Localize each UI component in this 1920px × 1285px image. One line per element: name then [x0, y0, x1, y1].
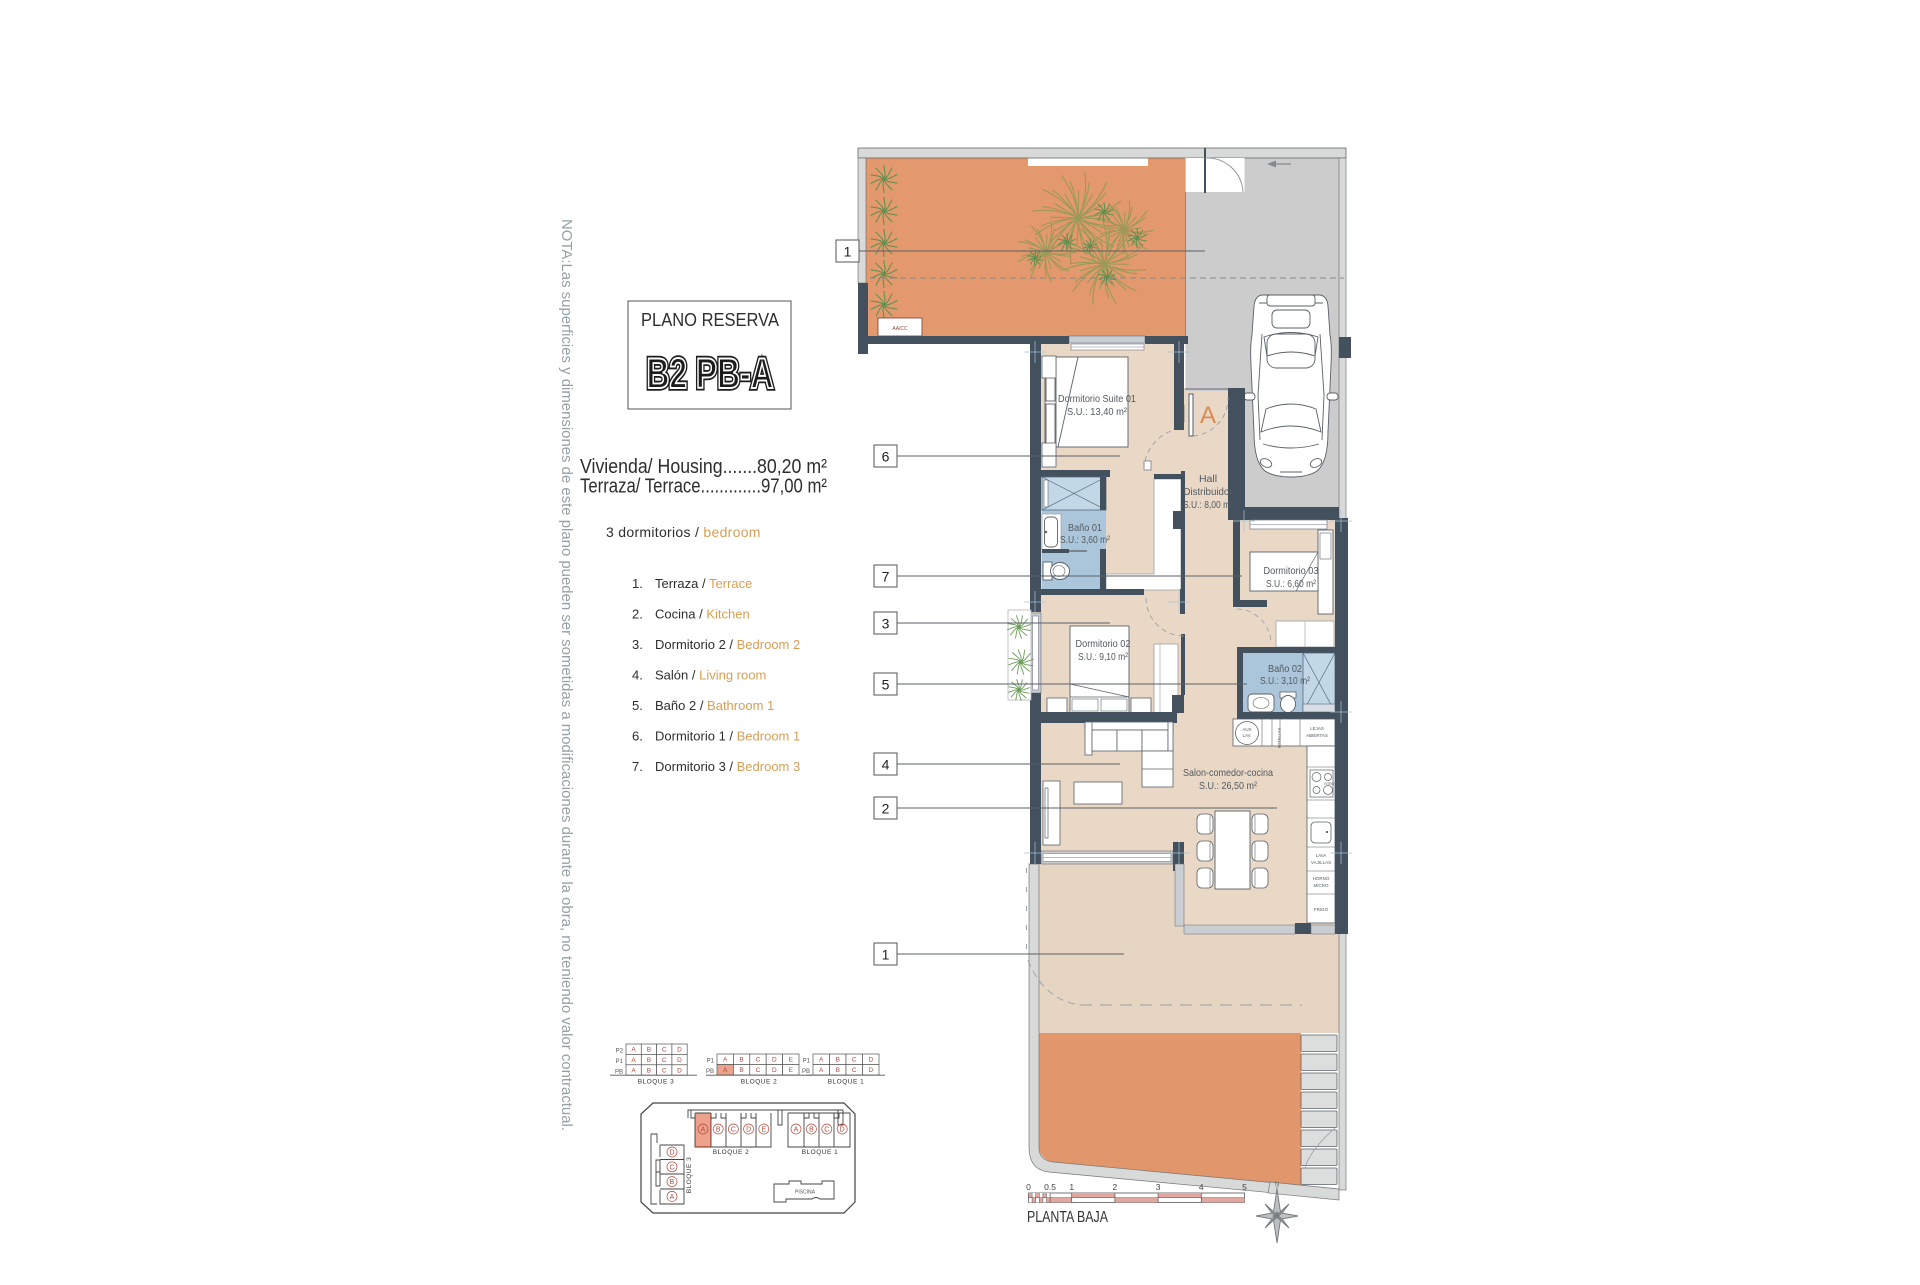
svg-text:LAVA: LAVA	[1316, 853, 1327, 858]
svg-text:C: C	[662, 1067, 667, 1074]
svg-text:LEJAS: LEJAS	[1310, 726, 1324, 731]
svg-text:S.U.: 6,60 m²: S.U.: 6,60 m²	[1266, 578, 1316, 590]
svg-text:E: E	[789, 1067, 794, 1074]
svg-text:D: D	[840, 1127, 845, 1134]
svg-text:A: A	[1200, 402, 1216, 429]
svg-text:P1: P1	[707, 1059, 715, 1065]
svg-text:PB: PB	[802, 1069, 810, 1075]
svg-text:A: A	[723, 1057, 728, 1064]
svg-text:S.U.: 3,60 m²: S.U.: 3,60 m²	[1060, 535, 1111, 546]
svg-text:Dormitorio 1 / Bedroom 1: Dormitorio 1 / Bedroom 1	[655, 729, 800, 744]
svg-text:2.: 2.	[632, 607, 643, 622]
svg-text:Dormitorio 03: Dormitorio 03	[1264, 565, 1319, 577]
svg-text:S.U.: 9,10 m²: S.U.: 9,10 m²	[1078, 651, 1128, 663]
svg-text:BLOQUE 1: BLOQUE 1	[802, 1149, 839, 1156]
svg-text:B: B	[739, 1067, 743, 1074]
svg-text:0.5: 0.5	[1044, 1182, 1056, 1192]
svg-text:C: C	[731, 1127, 736, 1134]
svg-text:Dormitorio 02: Dormitorio 02	[1076, 638, 1131, 650]
svg-text:A: A	[701, 1127, 706, 1134]
svg-text:A: A	[631, 1057, 636, 1064]
svg-text:S.U.: 8,00 m²: S.U.: 8,00 m²	[1183, 499, 1233, 511]
svg-text:C: C	[852, 1057, 857, 1064]
svg-text:NOTA:Las superficies y dimensi: NOTA:Las superficies y dimensiones de es…	[558, 219, 575, 1131]
svg-text:AA/CC: AA/CC	[892, 326, 908, 332]
svg-text:2: 2	[882, 801, 890, 817]
svg-text:Terraza/ Terrace.............9: Terraza/ Terrace.............97,00 m²	[580, 476, 827, 498]
svg-text:BLOQUE 3: BLOQUE 3	[686, 1157, 693, 1194]
svg-text:7: 7	[882, 569, 890, 585]
svg-text:Salón / Living room: Salón / Living room	[655, 668, 766, 683]
svg-text:AUX: AUX	[1242, 727, 1251, 732]
svg-text:B2 PB-A: B2 PB-A	[647, 350, 774, 398]
svg-text:4: 4	[882, 757, 890, 773]
svg-text:A: A	[631, 1067, 636, 1074]
svg-text:PB: PB	[706, 1069, 714, 1075]
svg-text:C: C	[669, 1164, 674, 1171]
svg-text:Cocina / Kitchen: Cocina / Kitchen	[655, 607, 750, 622]
svg-text:1.: 1.	[632, 576, 643, 591]
svg-text:B: B	[647, 1067, 651, 1074]
svg-text:PB: PB	[615, 1070, 623, 1076]
svg-text:6: 6	[882, 449, 890, 465]
svg-text:Baño 2 / Bathroom 1: Baño 2 / Bathroom 1	[655, 698, 774, 713]
svg-text:P1: P1	[616, 1059, 624, 1065]
svg-text:B: B	[716, 1127, 721, 1134]
svg-text:BLOQUE 2: BLOQUE 2	[741, 1079, 778, 1086]
svg-text:3 dormitorios / bedroom: 3 dormitorios / bedroom	[606, 524, 761, 540]
svg-text:B: B	[836, 1067, 840, 1074]
svg-text:C: C	[756, 1057, 761, 1064]
svg-text:3.: 3.	[632, 637, 643, 652]
svg-text:5: 5	[1242, 1182, 1247, 1192]
svg-text:MICRO: MICRO	[1314, 883, 1329, 888]
svg-text:Baño 02: Baño 02	[1268, 664, 1302, 675]
svg-text:P1: P1	[803, 1059, 811, 1065]
svg-text:Hall: Hall	[1199, 473, 1217, 485]
svg-text:PISCINA: PISCINA	[795, 1190, 816, 1196]
svg-text:0: 0	[1026, 1182, 1031, 1192]
svg-text:FRIGO: FRIGO	[1314, 907, 1329, 912]
svg-text:3: 3	[882, 616, 890, 632]
svg-text:D: D	[868, 1067, 873, 1074]
svg-text:Dormitorio 3 / Bedroom 3: Dormitorio 3 / Bedroom 3	[655, 759, 800, 774]
svg-text:BLOQUE 2: BLOQUE 2	[713, 1149, 750, 1156]
svg-text:C: C	[852, 1067, 857, 1074]
svg-text:A: A	[794, 1127, 799, 1134]
svg-text:P2: P2	[616, 1049, 624, 1055]
svg-text:Dormitorio 2 / Bedroom 2: Dormitorio 2 / Bedroom 2	[655, 637, 800, 652]
svg-text:S.U.: 3,10 m²: S.U.: 3,10 m²	[1260, 676, 1311, 687]
svg-text:D: D	[746, 1127, 751, 1134]
svg-text:B: B	[670, 1179, 675, 1186]
svg-text:HORNO: HORNO	[1313, 876, 1330, 881]
svg-text:3: 3	[1156, 1182, 1161, 1192]
svg-text:D: D	[677, 1067, 682, 1074]
svg-text:B: B	[739, 1057, 743, 1064]
svg-text:D: D	[677, 1057, 682, 1064]
svg-text:C: C	[824, 1127, 829, 1134]
svg-text:LAV.: LAV.	[1242, 733, 1251, 738]
svg-text:ABIERTAS: ABIERTAS	[1306, 733, 1328, 738]
svg-text:C: C	[756, 1067, 761, 1074]
svg-text:Baño 01: Baño 01	[1068, 523, 1102, 534]
svg-text:4: 4	[1199, 1182, 1204, 1192]
svg-text:VITRO: VITRO	[1324, 782, 1335, 786]
svg-text:B: B	[647, 1057, 651, 1064]
svg-text:Terraza / Terrace: Terraza / Terrace	[655, 576, 752, 591]
svg-text:BLOQUE 3: BLOQUE 3	[638, 1079, 675, 1086]
svg-text:A: A	[723, 1067, 728, 1074]
svg-text:Salon-comedor-cocina: Salon-comedor-cocina	[1183, 767, 1273, 779]
svg-text:A: A	[670, 1194, 675, 1201]
svg-text:1: 1	[1069, 1182, 1074, 1192]
svg-text:Distribuidor: Distribuidor	[1184, 486, 1233, 498]
svg-text:4.: 4.	[632, 668, 643, 683]
svg-text:C: C	[662, 1047, 667, 1054]
svg-text:7.: 7.	[632, 759, 643, 774]
svg-text:C: C	[662, 1057, 667, 1064]
svg-text:D: D	[669, 1150, 674, 1157]
svg-text:B: B	[836, 1057, 840, 1064]
svg-text:D: D	[772, 1057, 777, 1064]
svg-text:A: A	[631, 1047, 636, 1054]
svg-text:Dormitorio Suite 01: Dormitorio Suite 01	[1058, 393, 1136, 405]
svg-text:D: D	[772, 1067, 777, 1074]
svg-text:5: 5	[882, 677, 890, 693]
svg-text:VAJILLAS: VAJILLAS	[1311, 860, 1331, 865]
svg-text:BLOQUE 1: BLOQUE 1	[828, 1079, 865, 1086]
svg-text:PLANTA BAJA: PLANTA BAJA	[1027, 1209, 1109, 1226]
svg-text:S.U.: 26,50 m²: S.U.: 26,50 m²	[1199, 780, 1257, 792]
svg-text:A: A	[819, 1067, 824, 1074]
svg-text:E: E	[789, 1057, 794, 1064]
svg-text:PLANO RESERVA: PLANO RESERVA	[641, 309, 780, 330]
svg-text:6.: 6.	[632, 729, 643, 744]
svg-text:N: N	[1275, 1182, 1279, 1188]
svg-text:1: 1	[882, 947, 890, 963]
svg-text:E: E	[761, 1127, 766, 1134]
svg-text:B: B	[647, 1047, 651, 1054]
svg-text:5.: 5.	[632, 698, 643, 713]
svg-text:D: D	[868, 1057, 873, 1064]
svg-text:D: D	[677, 1047, 682, 1054]
svg-text:B: B	[809, 1127, 814, 1134]
svg-text:A: A	[819, 1057, 824, 1064]
svg-text:BOTELLAS: BOTELLAS	[1277, 727, 1282, 748]
svg-text:1: 1	[844, 244, 852, 260]
svg-text:2: 2	[1113, 1182, 1118, 1192]
svg-text:S.U.: 13,40 m²: S.U.: 13,40 m²	[1067, 406, 1127, 418]
